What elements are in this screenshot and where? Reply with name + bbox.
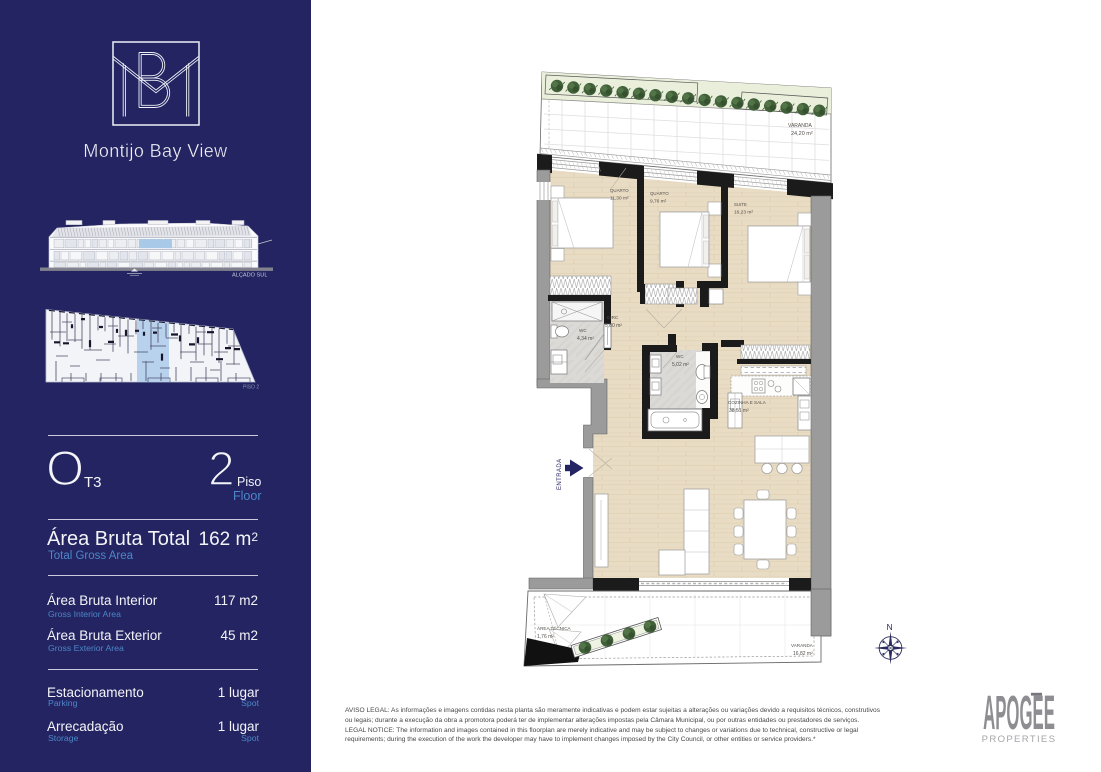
svg-text:9,76 m²: 9,76 m²: [650, 199, 667, 205]
svg-text:16,82 m²: 16,82 m²: [793, 651, 813, 657]
svg-text:QUARTO: QUARTO: [610, 188, 629, 193]
svg-text:VARANDA: VARANDA: [788, 123, 812, 129]
svg-text:4,34 m²: 4,34 m²: [577, 336, 594, 342]
svg-text:PROPERTIES: PROPERTIES: [982, 734, 1057, 745]
svg-text:11,30 m²: 11,30 m²: [610, 196, 629, 202]
svg-text:24,20 m²: 24,20 m²: [791, 131, 813, 137]
svg-text:5,02 m²: 5,02 m²: [672, 362, 689, 368]
svg-text:CIRC: CIRC: [607, 315, 619, 320]
svg-text:38,51 m²: 38,51 m²: [729, 408, 749, 414]
svg-text:ÁREA TÉCNICA: ÁREA TÉCNICA: [537, 625, 572, 631]
svg-text:VARANDA: VARANDA: [791, 643, 814, 648]
svg-text:SUITE: SUITE: [734, 202, 747, 207]
svg-text:5,80 m²: 5,80 m²: [605, 323, 622, 329]
svg-text:APOGEE: APOGEE: [983, 688, 1055, 740]
svg-text:16,23 m²: 16,23 m²: [734, 210, 753, 216]
svg-text:COZINHA E SALA: COZINHA E SALA: [728, 400, 767, 405]
svg-text:ENTRADA: ENTRADA: [557, 459, 563, 490]
svg-text:WC: WC: [579, 328, 587, 333]
svg-text:N: N: [887, 622, 893, 632]
svg-text:WC: WC: [676, 354, 684, 359]
svg-text:QUARTO: QUARTO: [650, 191, 669, 196]
svg-text:1,76 m²: 1,76 m²: [537, 634, 554, 640]
